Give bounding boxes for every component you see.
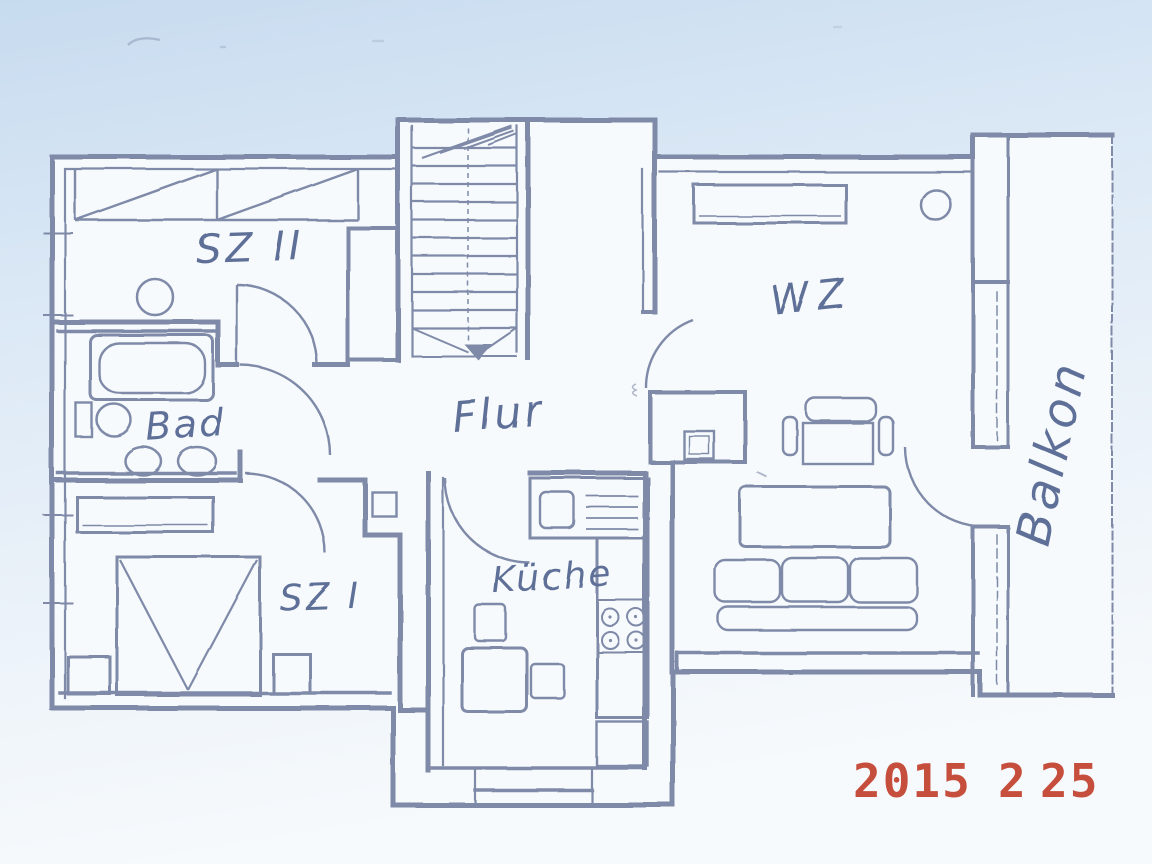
burner-dot: [608, 638, 611, 641]
burner-dot: [634, 638, 637, 641]
room-label-flur: Flur: [450, 385, 546, 442]
date-stamp-year: 2015: [853, 754, 972, 808]
date-stamp-day: 25: [1040, 754, 1099, 808]
room-label-wz: WZ: [768, 271, 855, 325]
burner-dot: [608, 615, 611, 618]
room-label-kueche: Küche: [491, 553, 614, 602]
burner-dot: [634, 615, 637, 618]
room-label-sz2: SZ II: [195, 223, 306, 273]
floor-plan-canvas: SZ II Bad Flur WZ SZ I Küche Balkon 2015…: [0, 0, 1152, 864]
scanned-floor-plan-photo: SZ II Bad Flur WZ SZ I Küche Balkon 2015…: [0, 0, 1152, 864]
date-stamp-month: 2: [998, 754, 1028, 808]
room-label-bad: Bad: [144, 400, 226, 449]
room-label-sz1: SZ I: [279, 576, 362, 620]
